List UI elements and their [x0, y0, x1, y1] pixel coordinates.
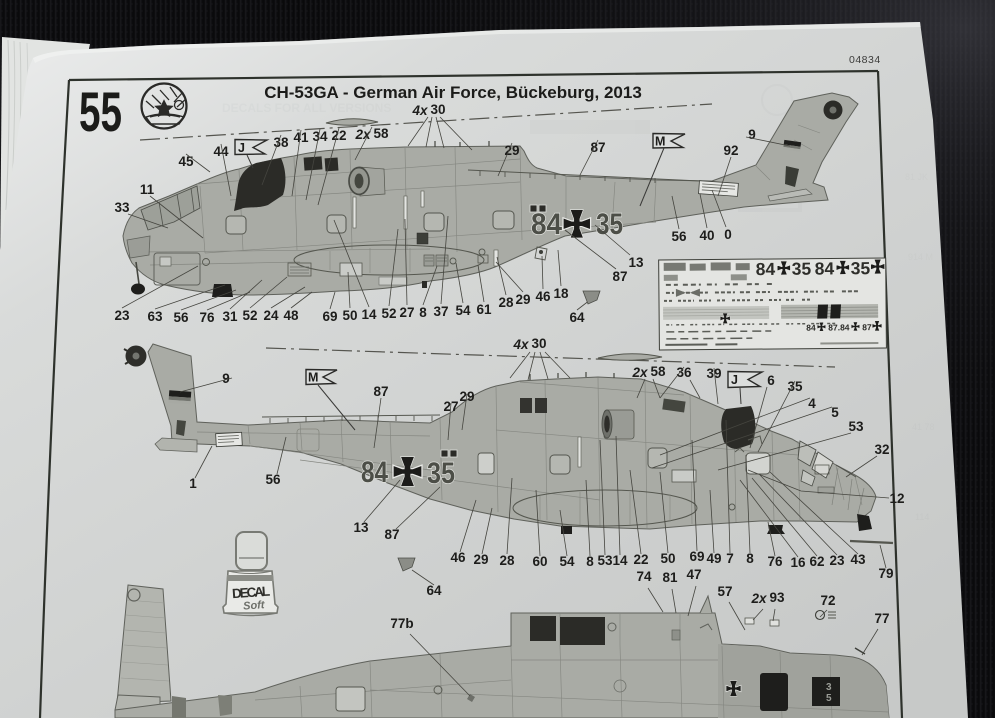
- svg-text:16: 16: [790, 555, 806, 570]
- svg-text:J: J: [238, 141, 245, 155]
- svg-text:12: 12: [889, 491, 904, 506]
- svg-text:14: 14: [612, 553, 628, 568]
- svg-text:37: 37: [433, 304, 448, 319]
- svg-text:8: 8: [586, 554, 594, 569]
- svg-text:32: 32: [874, 442, 889, 457]
- svg-text:54: 54: [559, 554, 575, 569]
- svg-text:41 78: 41 78: [912, 422, 935, 432]
- svg-text:53: 53: [848, 419, 864, 434]
- svg-text:84: 84: [806, 323, 816, 333]
- svg-text:23: 23: [829, 553, 845, 568]
- svg-text:0: 0: [724, 227, 732, 242]
- svg-text:58: 58: [373, 126, 389, 141]
- svg-text:9: 9: [748, 127, 756, 142]
- svg-text:47: 47: [686, 567, 701, 582]
- svg-text:3: 3: [826, 682, 832, 693]
- svg-text:64: 64: [569, 310, 585, 325]
- svg-text:18: 18: [553, 286, 569, 301]
- svg-text:35: 35: [851, 258, 871, 278]
- svg-text:56: 56: [173, 310, 189, 325]
- svg-text:69: 69: [322, 309, 337, 324]
- svg-text:84: 84: [756, 259, 776, 279]
- svg-text:54: 54: [455, 303, 471, 318]
- svg-text:55: 55: [79, 80, 122, 143]
- svg-text:35: 35: [427, 457, 455, 490]
- svg-text:DECAL: DECAL: [232, 584, 271, 602]
- svg-text:46: 46: [535, 289, 551, 304]
- svg-text:Soft: Soft: [243, 599, 267, 613]
- svg-text:52: 52: [381, 306, 396, 321]
- svg-text:77b: 77b: [390, 616, 413, 631]
- svg-text:13: 13: [353, 520, 369, 535]
- svg-text:74: 74: [636, 569, 652, 584]
- svg-text:52: 52: [242, 308, 257, 323]
- svg-text:4x: 4x: [411, 103, 428, 118]
- svg-text:30: 30: [531, 336, 546, 351]
- svg-text:14: 14: [361, 307, 377, 322]
- svg-text:28: 28: [499, 553, 515, 568]
- svg-text:57: 57: [717, 584, 732, 599]
- svg-text:76: 76: [767, 554, 783, 569]
- svg-text:87: 87: [590, 140, 605, 155]
- svg-text:87: 87: [612, 269, 627, 284]
- svg-text:29: 29: [515, 292, 530, 307]
- svg-text:34: 34: [312, 129, 328, 144]
- svg-text:914 M: 914 M: [908, 252, 933, 262]
- svg-text:50: 50: [660, 551, 675, 566]
- svg-text:13: 13: [628, 255, 644, 270]
- svg-text:114: 114: [915, 512, 929, 522]
- svg-text:87: 87: [384, 527, 399, 542]
- svg-text:23: 23: [114, 308, 130, 323]
- svg-text:6: 6: [767, 373, 775, 388]
- svg-text:28: 28: [498, 295, 514, 310]
- svg-text:41: 41: [293, 130, 309, 145]
- svg-text:87.84: 87.84: [828, 322, 850, 332]
- svg-text:50: 50: [342, 308, 357, 323]
- svg-text:79: 79: [878, 566, 893, 581]
- svg-text:63: 63: [147, 309, 163, 324]
- svg-text:53: 53: [597, 553, 613, 568]
- svg-text:2x: 2x: [631, 365, 648, 380]
- svg-text:64: 64: [426, 583, 442, 598]
- svg-text:81 JK: 81 JK: [905, 172, 928, 182]
- svg-text:35: 35: [596, 208, 623, 241]
- svg-text:43: 43: [850, 552, 866, 567]
- svg-text:93: 93: [769, 590, 785, 605]
- svg-text:69: 69: [689, 549, 704, 564]
- svg-text:40: 40: [699, 228, 714, 243]
- svg-text:29: 29: [473, 552, 488, 567]
- svg-text:84: 84: [531, 208, 562, 241]
- svg-text:8: 8: [746, 551, 754, 566]
- svg-text:84: 84: [815, 258, 835, 278]
- svg-text:22: 22: [633, 552, 648, 567]
- svg-text:M: M: [655, 135, 665, 149]
- svg-text:M: M: [308, 371, 318, 385]
- svg-text:87: 87: [373, 384, 388, 399]
- svg-text:45: 45: [178, 154, 194, 169]
- svg-text:4x: 4x: [512, 337, 529, 352]
- svg-text:J: J: [731, 373, 738, 387]
- svg-text:30: 30: [430, 102, 445, 117]
- svg-text:5: 5: [826, 693, 832, 704]
- svg-text:62: 62: [809, 554, 824, 569]
- svg-text:76: 76: [199, 310, 215, 325]
- svg-text:92: 92: [723, 143, 738, 158]
- svg-text:04834: 04834: [849, 54, 881, 66]
- svg-text:27: 27: [399, 305, 414, 320]
- svg-text:58: 58: [650, 364, 666, 379]
- svg-text:2x: 2x: [750, 591, 767, 606]
- svg-text:49: 49: [706, 551, 721, 566]
- svg-text:1: 1: [189, 476, 197, 491]
- svg-text:22: 22: [331, 128, 346, 143]
- svg-text:77: 77: [874, 611, 889, 626]
- svg-text:DECALS FOR ALL VERSIONS: DECALS FOR ALL VERSIONS: [222, 101, 391, 115]
- svg-text:7: 7: [726, 551, 734, 566]
- svg-text:35: 35: [792, 259, 812, 279]
- svg-text:81: 81: [662, 570, 678, 585]
- svg-text:60: 60: [532, 554, 547, 569]
- svg-text:11: 11: [140, 182, 155, 197]
- svg-text:56: 56: [265, 472, 281, 487]
- svg-text:72: 72: [820, 593, 835, 608]
- svg-text:87: 87: [862, 322, 872, 332]
- svg-text:CH-53GA - German Air Force, Bü: CH-53GA - German Air Force, Bückeburg, 2…: [264, 83, 642, 102]
- svg-text:56: 56: [671, 229, 687, 244]
- svg-text:46: 46: [450, 550, 466, 565]
- svg-text:24: 24: [263, 308, 279, 323]
- svg-text:84: 84: [361, 456, 388, 489]
- svg-text:48: 48: [283, 308, 299, 323]
- svg-text:31: 31: [222, 309, 238, 324]
- svg-text:61: 61: [476, 302, 492, 317]
- svg-text:33: 33: [114, 200, 130, 215]
- svg-text:8: 8: [419, 305, 427, 320]
- svg-text:5: 5: [831, 405, 839, 420]
